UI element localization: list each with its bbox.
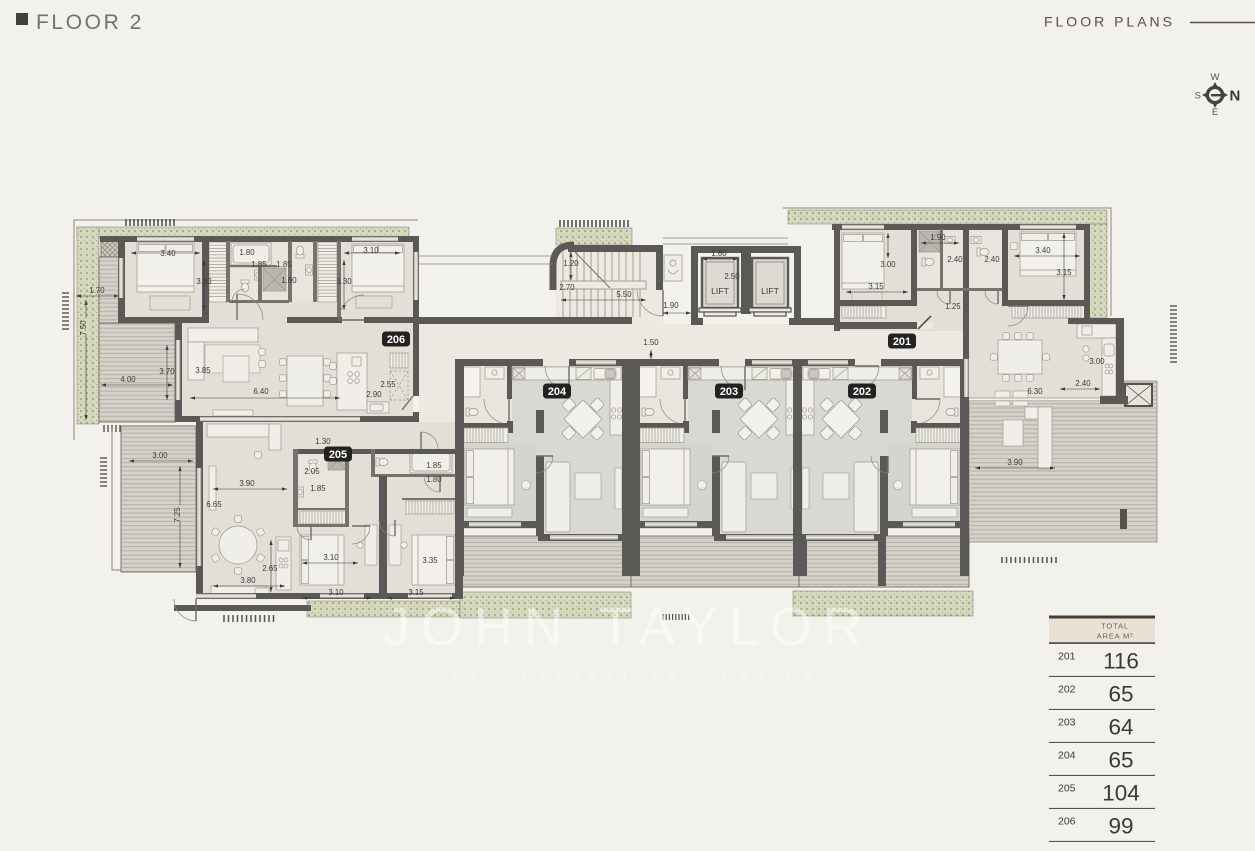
svg-text:202: 202 [1058, 684, 1076, 696]
svg-text:3.90: 3.90 [1007, 458, 1023, 467]
svg-text:2.90: 2.90 [366, 390, 382, 399]
svg-text:2.50: 2.50 [724, 272, 740, 281]
svg-text:3.15: 3.15 [408, 588, 424, 597]
svg-text:4.00: 4.00 [120, 375, 136, 384]
svg-text:3.90: 3.90 [239, 479, 255, 488]
svg-text:3.00: 3.00 [880, 260, 896, 269]
svg-text:203: 203 [720, 386, 738, 398]
svg-text:65: 65 [1108, 682, 1133, 707]
svg-text:1.85: 1.85 [276, 260, 292, 269]
svg-text:65: 65 [1108, 748, 1133, 773]
svg-text:3.35: 3.35 [422, 556, 438, 565]
svg-text:2.40: 2.40 [1075, 379, 1091, 388]
svg-text:LIFT: LIFT [711, 286, 729, 296]
svg-text:201: 201 [1058, 651, 1076, 663]
svg-text:3.10: 3.10 [323, 553, 339, 562]
svg-text:99: 99 [1108, 814, 1133, 839]
svg-text:6.30: 6.30 [1027, 387, 1043, 396]
svg-text:1.85: 1.85 [251, 260, 267, 269]
svg-text:3.15: 3.15 [868, 282, 884, 291]
svg-text:3.80: 3.80 [240, 576, 256, 585]
svg-text:2.70: 2.70 [559, 283, 575, 292]
svg-text:EXCEPTIONAL PROPERTIES: EXCEPTIONAL PROPERTIES [453, 670, 822, 684]
svg-text:1.50: 1.50 [643, 338, 659, 347]
svg-text:FLOOR 2: FLOOR 2 [36, 11, 144, 34]
svg-text:7.25: 7.25 [173, 507, 182, 523]
svg-text:LIFT: LIFT [761, 286, 779, 296]
svg-text:FLOOR PLANS: FLOOR PLANS [1044, 14, 1175, 30]
svg-text:3.30: 3.30 [196, 277, 212, 286]
svg-text:1.80: 1.80 [239, 248, 255, 257]
svg-text:1.80: 1.80 [711, 249, 727, 258]
svg-text:1.25: 1.25 [945, 302, 961, 311]
svg-text:3.00: 3.00 [1089, 357, 1105, 366]
svg-text:JOHN TAYLOR: JOHN TAYLOR [383, 597, 873, 657]
svg-text:64: 64 [1108, 715, 1133, 740]
svg-text:2.55: 2.55 [380, 380, 396, 389]
svg-text:2.05: 2.05 [304, 467, 320, 476]
svg-text:1.80: 1.80 [426, 475, 442, 484]
svg-text:1.30: 1.30 [315, 437, 331, 446]
svg-text:3.30: 3.30 [336, 277, 352, 286]
svg-text:1.70: 1.70 [89, 286, 105, 295]
svg-text:1.85: 1.85 [426, 461, 442, 470]
svg-text:W: W [1211, 72, 1220, 83]
svg-text:1.90: 1.90 [663, 301, 679, 310]
svg-text:205: 205 [1058, 783, 1076, 795]
svg-text:6.40: 6.40 [253, 387, 269, 396]
svg-text:5.50: 5.50 [616, 290, 632, 299]
svg-text:3.00: 3.00 [152, 451, 168, 460]
svg-text:3.15: 3.15 [1056, 268, 1072, 277]
svg-text:206: 206 [1058, 816, 1076, 828]
svg-text:1.80: 1.80 [281, 276, 297, 285]
svg-text:202: 202 [853, 386, 871, 398]
svg-text:3.40: 3.40 [160, 249, 176, 258]
svg-text:S: S [1195, 91, 1201, 102]
svg-text:206: 206 [387, 334, 405, 346]
svg-text:2.40: 2.40 [947, 255, 963, 264]
svg-text:204: 204 [1058, 750, 1076, 762]
svg-text:2.65: 2.65 [262, 564, 278, 573]
svg-text:AREA M²: AREA M² [1097, 632, 1134, 641]
svg-text:2.40: 2.40 [984, 255, 1000, 264]
svg-text:104: 104 [1102, 781, 1140, 806]
svg-text:3.10: 3.10 [363, 246, 379, 255]
svg-text:1.90: 1.90 [930, 233, 946, 242]
svg-text:204: 204 [548, 386, 567, 398]
svg-text:1.20: 1.20 [563, 259, 579, 268]
svg-text:201: 201 [893, 336, 911, 348]
svg-text:N: N [1230, 88, 1241, 105]
svg-text:6.65: 6.65 [206, 500, 222, 509]
svg-text:3.85: 3.85 [195, 366, 211, 375]
svg-text:3.70: 3.70 [159, 367, 175, 376]
svg-text:116: 116 [1103, 649, 1139, 674]
svg-text:3.40: 3.40 [1035, 246, 1051, 255]
svg-text:205: 205 [329, 449, 347, 461]
svg-text:E: E [1212, 107, 1218, 118]
svg-text:3.10: 3.10 [328, 588, 344, 597]
svg-text:203: 203 [1058, 717, 1076, 729]
svg-text:1.85: 1.85 [310, 484, 326, 493]
svg-text:TOTAL: TOTAL [1101, 622, 1129, 631]
svg-text:7.50: 7.50 [79, 320, 88, 336]
